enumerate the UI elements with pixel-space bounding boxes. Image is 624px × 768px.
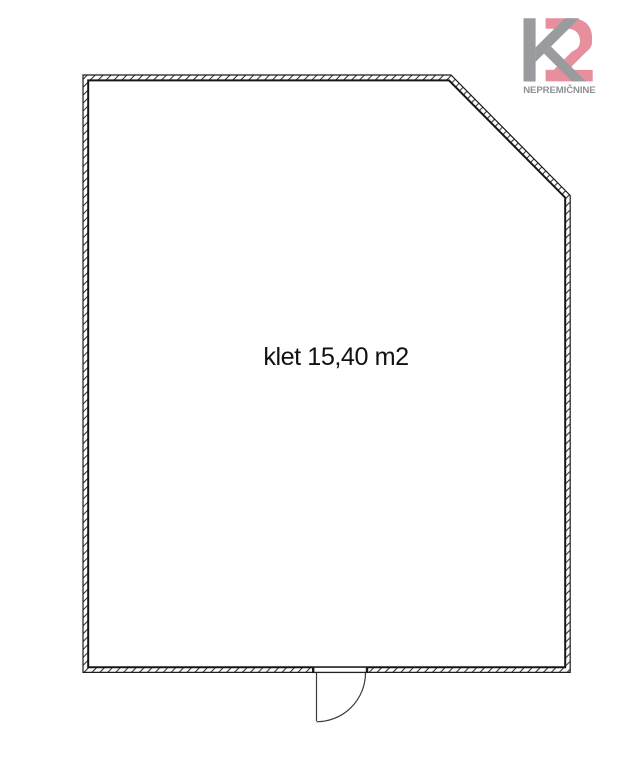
svg-text:NEPREMIČNINE: NEPREMIČNINE <box>523 84 596 96</box>
svg-text:klet 15,40 m2: klet 15,40 m2 <box>263 343 408 371</box>
